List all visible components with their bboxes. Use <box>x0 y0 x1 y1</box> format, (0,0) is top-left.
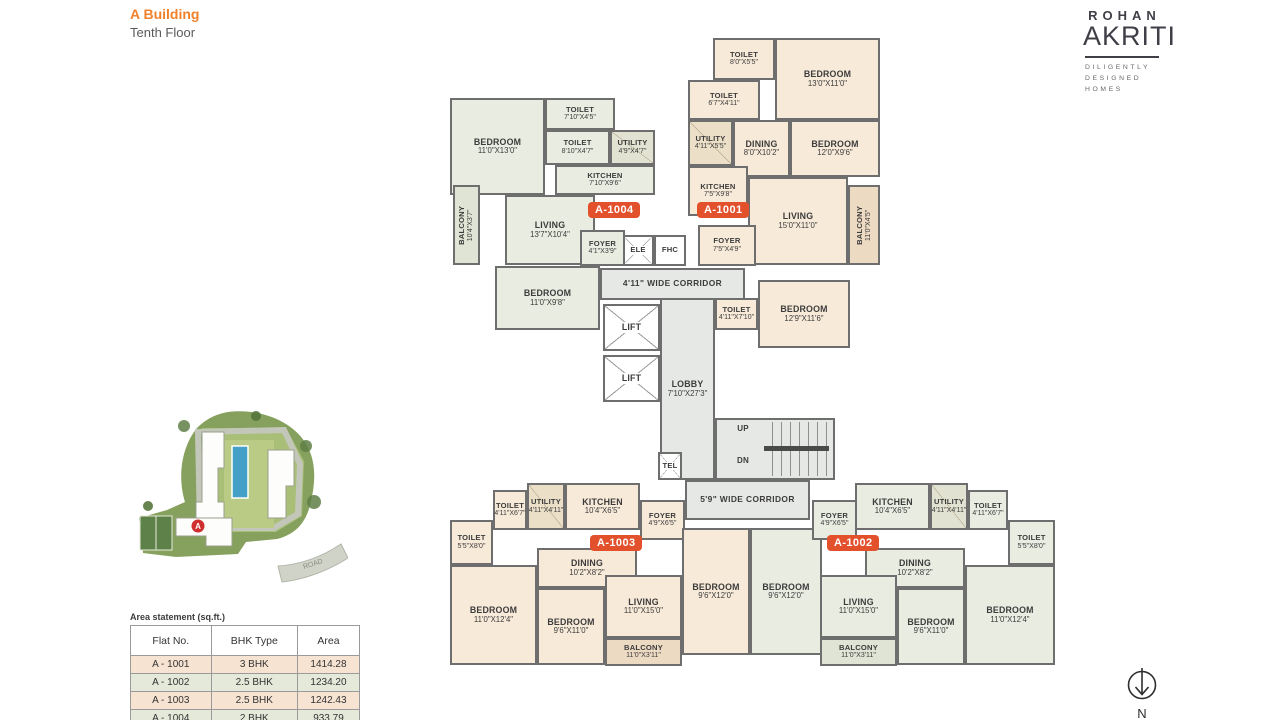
area-table-cell: 1414.28 <box>297 656 359 674</box>
a1004-bedroom-2: BEDROOM11'0"X9'8" <box>495 266 600 330</box>
a1001-living: LIVING15'0"X11'0" <box>748 177 848 265</box>
a1003-bedroom-3: BEDROOM9'6"X12'0" <box>682 528 750 655</box>
fire-hose-cabinet: FHC <box>654 235 686 266</box>
a1004-foyer: FOYER4'1"X3'9" <box>580 230 625 266</box>
a1002-bedroom-3: BEDROOM9'6"X12'0" <box>750 528 822 655</box>
lift-2: LIFT <box>603 355 660 402</box>
site-plan-map: ROAD A <box>136 406 348 606</box>
floor-title: Tenth Floor <box>130 25 199 40</box>
area-table-cell: A - 1001 <box>131 656 212 674</box>
logo-divider <box>1085 56 1159 58</box>
site-tree <box>251 411 261 421</box>
site-tree <box>307 495 321 509</box>
unit-badge-a1002: A-1002 <box>827 535 879 551</box>
area-table-cell: 1242.43 <box>297 692 359 710</box>
a1001-bedroom-3: BEDROOM12'9"X11'6" <box>758 280 850 348</box>
site-pool <box>232 446 248 498</box>
a1003-toilet-1: TOILET4'11"X6'7" <box>493 490 527 530</box>
area-table-header-cell: Area <box>297 626 359 656</box>
a1004-kitchen: KITCHEN7'10"X9'6" <box>555 165 655 195</box>
a1004-balcony: BALCONY10'4"X3'7" <box>453 185 480 265</box>
lift-1: LIFT <box>603 304 660 351</box>
area-table-cell: 2.5 BHK <box>211 674 297 692</box>
a1001-toilet-2: TOILET6'7"X4'11" <box>688 80 760 120</box>
corridor-lower: 5'9" WIDE CORRIDOR <box>685 480 810 520</box>
brand-logo: ROHAN AKRITI DILIGENTLY DESIGNED HOMES <box>1083 8 1161 96</box>
area-statement: Area statement (sq.ft.) Flat No.BHK Type… <box>130 612 360 720</box>
north-indicator: N <box>1122 665 1162 720</box>
stairs-dn-label: DN <box>730 454 756 467</box>
area-table-cell: 3 BHK <box>211 656 297 674</box>
area-table-cell: 933.79 <box>297 710 359 720</box>
logo-name-text: AKRITI <box>1083 21 1161 52</box>
a1002-foyer: FOYER4'9"X6'5" <box>812 500 857 540</box>
logo-tagline-2: DESIGNED HOMES <box>1083 74 1161 96</box>
a1001-bedroom-1: BEDROOM13'0"X11'0" <box>775 38 880 120</box>
a1004-toilet-1: TOILET7'10"X4'5" <box>545 98 615 130</box>
a1003-utility: UTILITY4'11"X4'11" <box>527 483 565 530</box>
north-label: N <box>1122 706 1162 720</box>
a1002-bedroom-2: BEDROOM9'6"X11'0" <box>897 588 965 665</box>
plan-header: A Building Tenth Floor <box>130 6 199 40</box>
a1001-utility: UTILITY4'11"X5'5" <box>688 120 733 166</box>
building-title: A Building <box>130 6 199 22</box>
a1004-toilet-2: TOILET8'10"X4'7" <box>545 130 610 165</box>
page: { "header": { "building": "A Building", … <box>0 0 1280 720</box>
area-table-body: A - 10013 BHK1414.28A - 10022.5 BHK1234.… <box>131 656 360 720</box>
a1003-bedroom-1: BEDROOM11'0"X12'4" <box>450 565 537 665</box>
north-arrow-icon <box>1124 665 1160 703</box>
logo-tagline-1: DILIGENTLY <box>1083 63 1161 74</box>
unit-badge-a1001: A-1001 <box>697 202 749 218</box>
a1003-balcony: BALCONY11'0"X3'11" <box>605 638 682 666</box>
a1002-kitchen: KITCHEN10'4"X6'5" <box>855 483 930 530</box>
telephone-shaft: TEL <box>658 452 682 480</box>
a1002-balcony: BALCONY11'0"X3'11" <box>820 638 897 666</box>
stairs-up-label: UP <box>730 422 756 435</box>
area-table-cell: A - 1004 <box>131 710 212 720</box>
a1002-utility: UTILITY4'11"X4'11" <box>930 483 968 530</box>
unit-badge-a1003: A-1003 <box>590 535 642 551</box>
area-table: Flat No.BHK TypeArea A - 10013 BHK1414.2… <box>130 625 360 720</box>
site-tree <box>300 440 312 452</box>
a1003-living: LIVING11'0"X15'0" <box>605 575 682 638</box>
unit-badge-a1004: A-1004 <box>588 202 640 218</box>
a1004-utility: UTILITY4'9"X4'7" <box>610 130 655 165</box>
area-table-row: A - 10022.5 BHK1234.20 <box>131 674 360 692</box>
elevator-shaft: ELE <box>622 235 654 266</box>
site-a-building-marker-label: A <box>195 522 201 531</box>
a1001-balcony: BALCONY11'0"X4'5" <box>848 185 880 265</box>
a1001-foyer: FOYER7'5"X4'9" <box>698 225 756 266</box>
area-statement-title: Area statement (sq.ft.) <box>130 612 360 622</box>
floor-plan: 4'11" WIDE CORRIDORLOBBY7'10"X27'3"5'9" … <box>440 30 1065 685</box>
area-table-row: A - 10032.5 BHK1242.43 <box>131 692 360 710</box>
a1002-living: LIVING11'0"X15'0" <box>820 575 897 638</box>
site-tree <box>178 420 190 432</box>
a1003-kitchen: KITCHEN10'4"X6'5" <box>565 483 640 530</box>
site-tree <box>143 501 153 511</box>
a1002-toilet-2: TOILET5'5"X8'0" <box>1008 520 1055 565</box>
area-table-cell: A - 1003 <box>131 692 212 710</box>
area-table-cell: A - 1002 <box>131 674 212 692</box>
area-table-row: A - 10013 BHK1414.28 <box>131 656 360 674</box>
a1001-toilet-1: TOILET8'0"X5'5" <box>713 38 775 80</box>
area-table-header-row: Flat No.BHK TypeArea <box>131 626 360 656</box>
a1001-toilet-3: TOILET4'11"X7'10" <box>715 298 758 330</box>
a1003-toilet-2: TOILET5'5"X8'0" <box>450 520 493 565</box>
a1004-bedroom-1: BEDROOM11'0"X13'0" <box>450 98 545 195</box>
a1002-toilet-1: TOILET4'11"X6'7" <box>968 490 1008 530</box>
area-table-header-cell: Flat No. <box>131 626 212 656</box>
a1003-foyer: FOYER4'9"X6'5" <box>640 500 685 540</box>
a1003-bedroom-2: BEDROOM9'6"X11'0" <box>537 588 605 665</box>
corridor-upper: 4'11" WIDE CORRIDOR <box>600 268 745 300</box>
area-table-row: A - 10042 BHK933.79 <box>131 710 360 720</box>
a1001-bedroom-2: BEDROOM12'0"X9'6" <box>790 120 880 177</box>
area-table-cell: 2.5 BHK <box>211 692 297 710</box>
area-table-cell: 2 BHK <box>211 710 297 720</box>
area-table-header-cell: BHK Type <box>211 626 297 656</box>
a1002-bedroom-1: BEDROOM11'0"X12'4" <box>965 565 1055 665</box>
area-table-cell: 1234.20 <box>297 674 359 692</box>
